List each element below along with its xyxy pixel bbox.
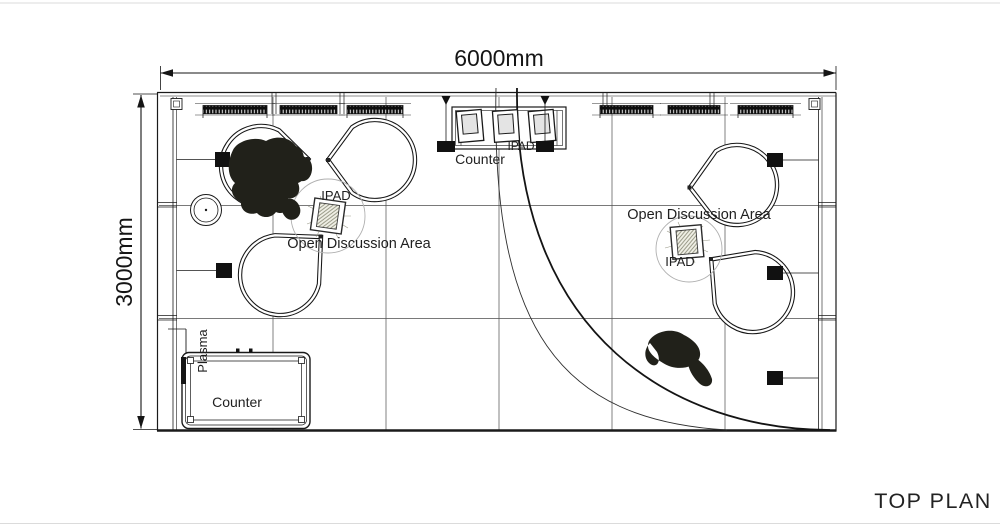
open-discussion-label-right: Open Discussion Area (627, 207, 771, 223)
dimension-arrow-bottom (137, 416, 145, 429)
ipad-label-right: IPAD (665, 254, 694, 269)
spotlight (767, 371, 783, 385)
dimension-arrow-top (137, 95, 145, 108)
walking-person-figure (645, 331, 712, 387)
width-dimension-text: 6000mm (454, 45, 543, 71)
ipad-label-left: IPAD (321, 188, 350, 203)
spotlight (215, 152, 230, 167)
plasma-screen (181, 357, 186, 384)
ipad-label-top: IPAD (507, 139, 534, 153)
counter-label-top: Counter (455, 151, 505, 167)
spotlight (767, 266, 783, 280)
counter-ipad-stands (456, 109, 556, 142)
spotlight (216, 263, 232, 278)
height-dimension-text: 3000mm (111, 217, 137, 306)
seated-person-figure (229, 138, 312, 220)
width-dimension: 6000mm (161, 45, 837, 90)
round-stool (191, 195, 222, 226)
bench-right-2 (709, 252, 793, 332)
plan-title: TOP PLAN (874, 489, 992, 513)
dimension-arrow-right (824, 69, 837, 77)
dimension-arrow-left (161, 69, 174, 77)
spotlight (767, 153, 783, 167)
counter-label-bottom: Counter (212, 394, 262, 410)
bottom-counter (168, 329, 310, 429)
floor-plan-canvas: Open Discussion Area IPAD Open Discussio… (0, 0, 1000, 527)
plasma-label: Plasma (195, 329, 210, 373)
open-discussion-label-left: Open Discussion Area (287, 236, 431, 252)
floor-plan-page: Open Discussion Area IPAD Open Discussio… (0, 0, 1000, 527)
ipad-station-right (656, 216, 722, 282)
height-dimension: 3000mm (111, 94, 157, 430)
